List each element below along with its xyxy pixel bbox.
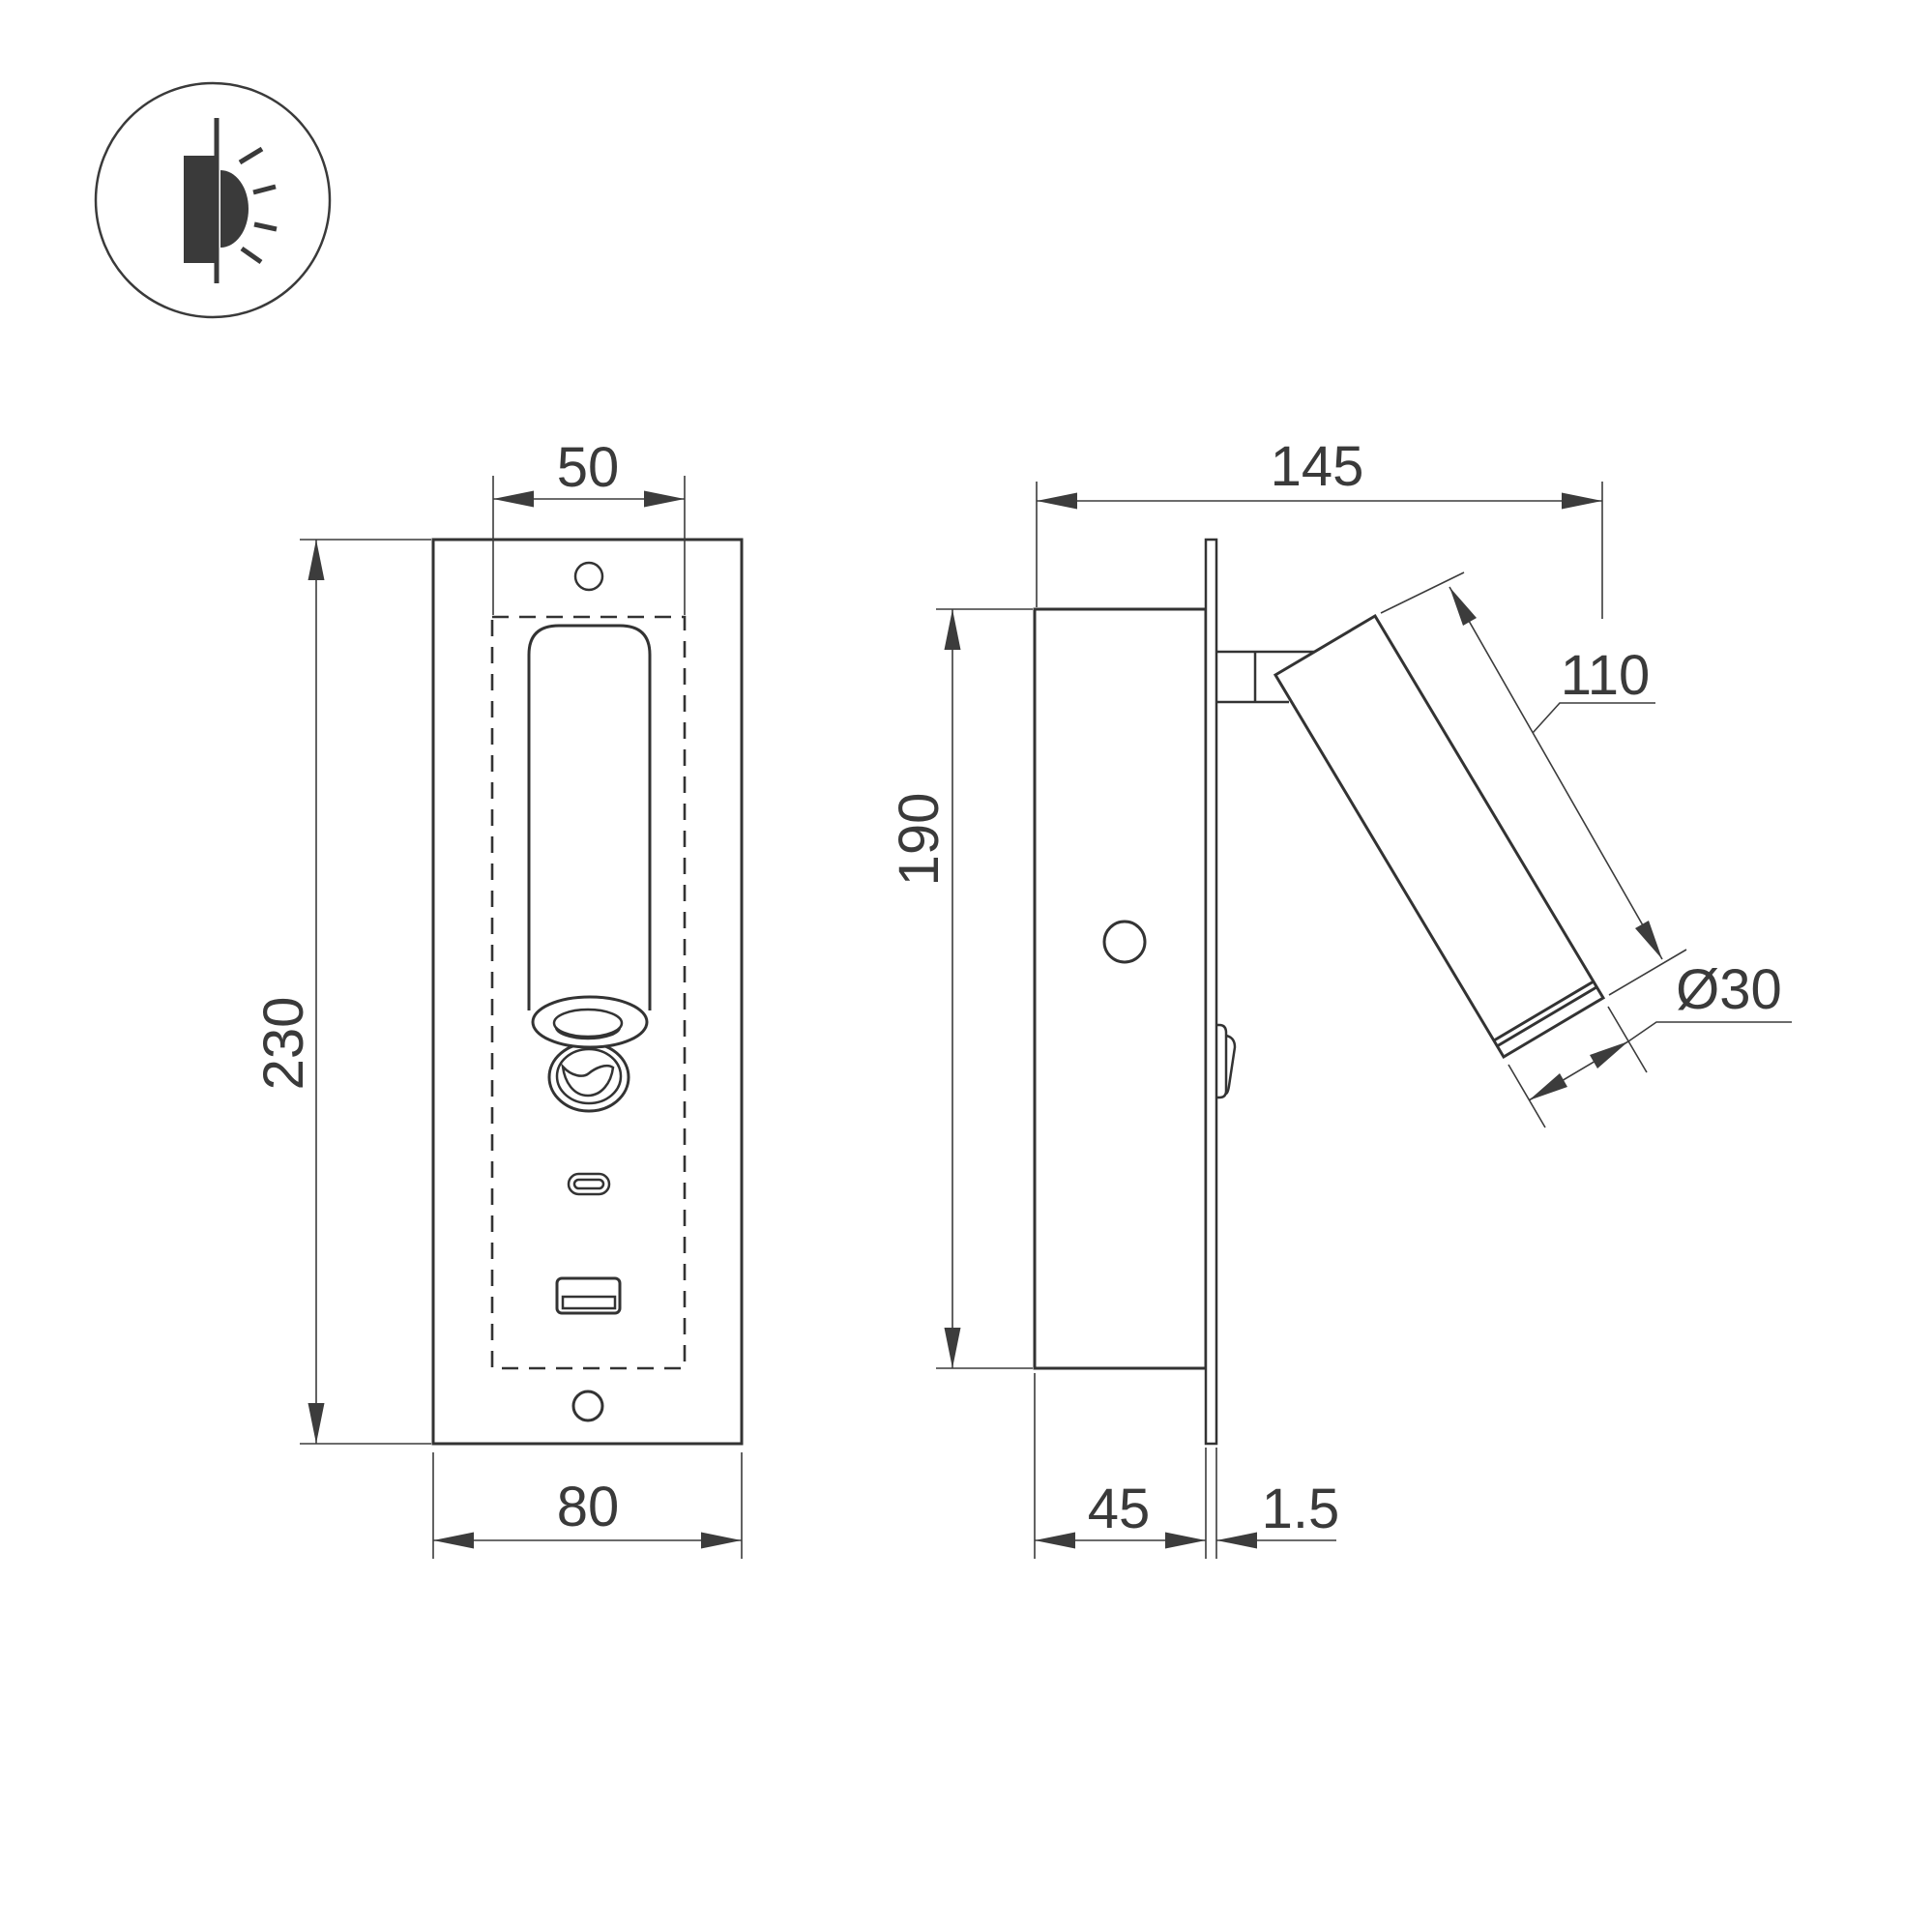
dim-label-plate-height: 230 xyxy=(252,997,315,1091)
screw-hole-top xyxy=(575,563,602,590)
dim-label-recess-width: 50 xyxy=(557,436,620,499)
dimension-plate-height: 230 xyxy=(252,540,431,1444)
recessed-wall-light-icon xyxy=(96,83,330,317)
dim-label-body-height: 190 xyxy=(888,793,951,887)
dimension-lines xyxy=(1037,482,1602,619)
dimension-recess-depth: 45 xyxy=(1035,1373,1206,1559)
dimension-recess-width: 50 xyxy=(493,436,685,615)
dimension-plate-thickness: 1.5 xyxy=(1216,1448,1339,1559)
dimension-plate-width: 80 xyxy=(433,1452,742,1559)
spot-tube-side xyxy=(1275,616,1603,1057)
screw-hole-bottom xyxy=(573,1391,602,1420)
dim-label-total-depth: 145 xyxy=(1271,435,1364,498)
dimension-body-height: 190 xyxy=(888,609,1033,1368)
spot-tube-front xyxy=(529,626,650,1010)
recess-cutout-dashed xyxy=(492,617,685,1368)
dim-label-plate-thickness: 1.5 xyxy=(1262,1478,1340,1540)
dimension-arrows xyxy=(1216,1533,1257,1549)
dimension-total-depth: 145 xyxy=(1037,435,1602,619)
usb-c-port-inner xyxy=(574,1180,603,1188)
dimension-lines xyxy=(936,609,1033,1368)
dim-label-spot-diameter: Ø30 xyxy=(1676,958,1782,1021)
dim-label-plate-width: 80 xyxy=(557,1476,620,1538)
dimension-leader xyxy=(1628,1022,1792,1041)
dim-label-spot-length: 110 xyxy=(1561,644,1650,707)
front-view: 50 230 80 xyxy=(252,436,742,1559)
side-view: 145 190 110 Ø30 45 xyxy=(888,435,1792,1559)
recessed-body-side xyxy=(1035,609,1206,1368)
dim-label-recess-depth: 45 xyxy=(1088,1478,1151,1540)
toggle-switch-lever xyxy=(1226,1036,1235,1094)
dimension-leader xyxy=(1533,703,1655,733)
dimension-lines xyxy=(300,540,431,1444)
body-button xyxy=(1104,922,1145,962)
spot-lens xyxy=(554,1010,622,1037)
icon-recessed-body xyxy=(184,156,217,263)
faceplate-side xyxy=(1206,540,1216,1444)
toggle-switch xyxy=(1216,1025,1226,1098)
technical-drawing: 50 230 80 xyxy=(0,0,1932,1932)
icon-light-halfdisc xyxy=(220,170,249,248)
usb-a-tongue xyxy=(563,1297,615,1308)
